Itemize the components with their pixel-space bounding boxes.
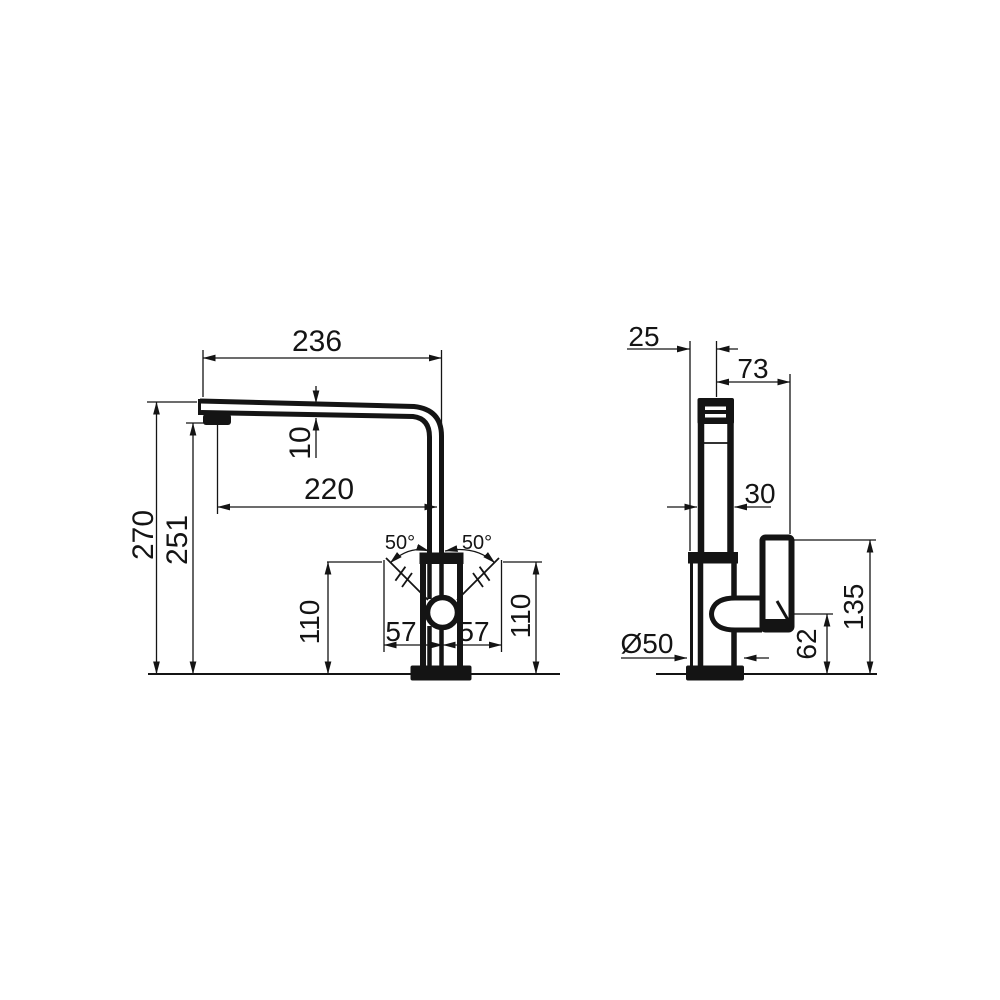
dim-57-right: 57 [458,616,489,647]
dim-73: 73 [737,353,768,384]
dim-30: 30 [744,478,775,509]
dim-50deg-left: 50° [385,532,415,554]
dim-251: 251 [161,515,194,565]
dim-110-right: 110 [505,594,536,639]
faucet-dimension-drawing: 236 220 10 270 251 50° 50° 57 57 110 110 [0,0,1000,1000]
lever-pivot [428,598,458,628]
dim-62: 62 [791,628,822,659]
dim-10: 10 [284,426,317,459]
side-body [686,552,762,681]
dim-220: 220 [304,473,354,506]
dim-50deg-right: 50° [462,532,492,554]
handle-pivot-boss [712,598,763,630]
front-view: 236 220 10 270 251 50° 50° 57 57 110 110 [127,325,560,681]
dim-57-left: 57 [385,616,416,647]
front-base [411,666,472,681]
side-base [686,666,744,681]
front-labels: 236 220 10 270 251 50° 50° 57 57 110 110 [127,325,536,647]
side-column [698,398,735,557]
side-handle [763,538,792,630]
side-view: 25 73 30 Ø50 62 135 [621,321,877,681]
side-spout-cap [698,398,735,424]
dim-110-left: 110 [294,600,325,645]
dim-270: 270 [127,510,160,560]
dim-dia-50: Ø50 [621,628,674,659]
dim-135: 135 [838,584,869,631]
technical-drawing-page: 236 220 10 270 251 50° 50° 57 57 110 110 [0,0,1000,1000]
aerator [203,414,231,425]
dim-25: 25 [628,321,659,352]
dim-236: 236 [292,325,342,358]
